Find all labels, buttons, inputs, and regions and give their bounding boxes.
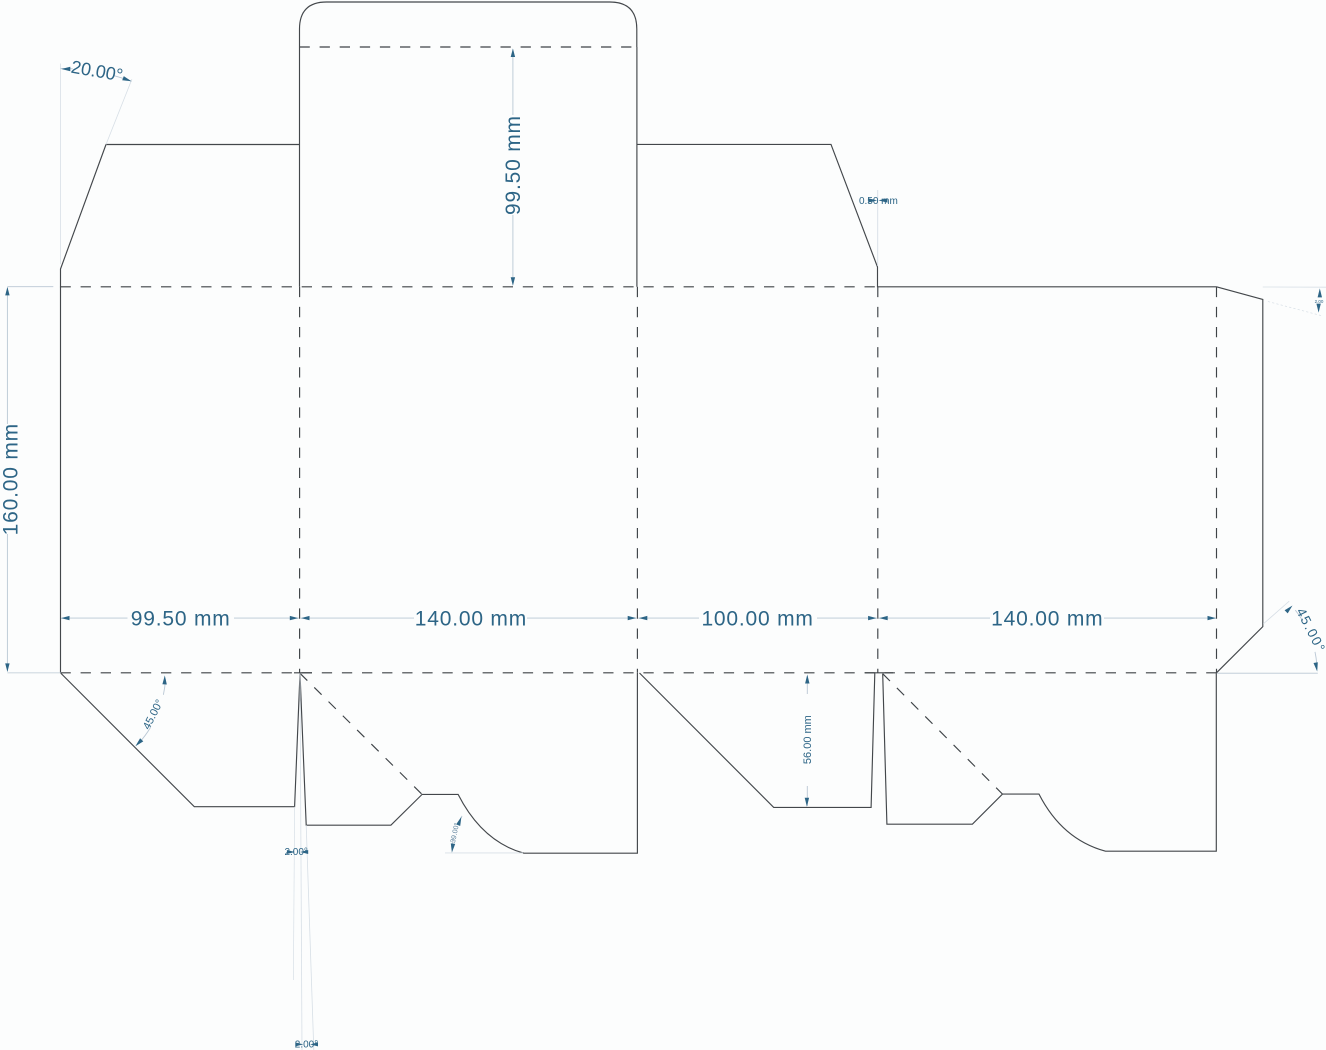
svg-text:2.00°: 2.00° [284, 847, 307, 858]
svg-text:99.50 mm: 99.50 mm [502, 115, 525, 215]
svg-text:140.00 mm: 140.00 mm [991, 607, 1103, 630]
svg-text:160.00 mm: 160.00 mm [0, 423, 23, 535]
svg-text:56.00 mm: 56.00 mm [802, 715, 814, 764]
svg-text:0.50 mm: 0.50 mm [859, 196, 898, 207]
svg-text:2.00: 2.00 [1315, 299, 1324, 304]
svg-text:99.50 mm: 99.50 mm [131, 607, 231, 630]
svg-text:2.00°: 2.00° [295, 1040, 318, 1050]
svg-text:140.00 mm: 140.00 mm [415, 607, 527, 630]
svg-text:100.00 mm: 100.00 mm [701, 607, 813, 630]
